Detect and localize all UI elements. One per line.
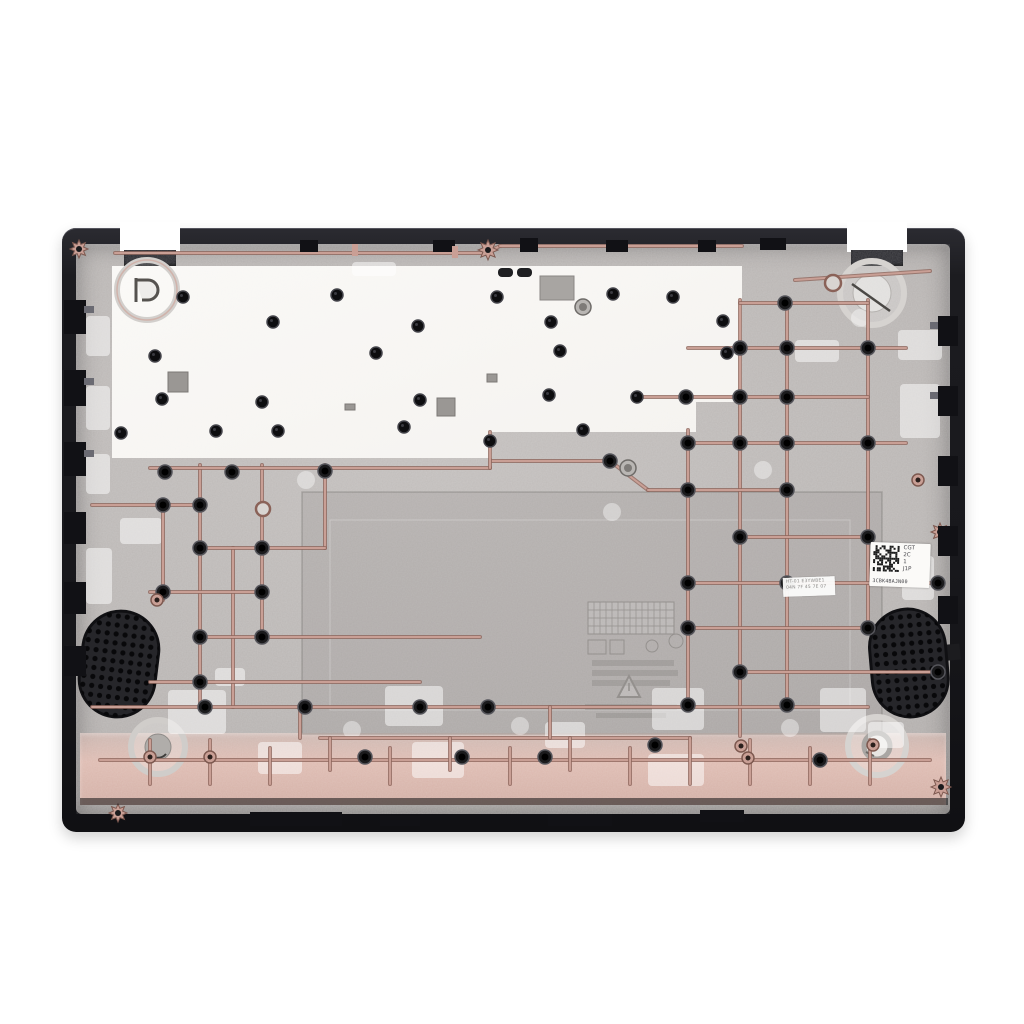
- qr-line: J1P: [903, 566, 915, 573]
- part-number: 3CBK4BAJN00: [872, 578, 908, 585]
- qr-sticker-text: CGT 2C 1 J1P: [903, 545, 915, 573]
- service-label-line: 04N 7F 45 7E 07: [786, 584, 832, 592]
- hinge-notch-left: [120, 222, 180, 252]
- hinge-notch-right: [847, 222, 907, 252]
- hinge-pocket-right: [851, 250, 903, 266]
- service-label: HT-01 E3YWBE1 04N 7F 45 7E 07: [783, 576, 836, 597]
- qr-code: [874, 545, 876, 547]
- product-photo: CGT 2C 1 J1P 3CBK4BAJN00 HT-01 E3YWBE1 0…: [0, 0, 1024, 1024]
- hinge-pocket-left: [124, 250, 176, 266]
- qr-part-sticker: CGT 2C 1 J1P 3CBK4BAJN00: [869, 542, 930, 588]
- adhesive-gasket-band: [80, 733, 946, 805]
- chassis-interior-surface: [76, 244, 950, 814]
